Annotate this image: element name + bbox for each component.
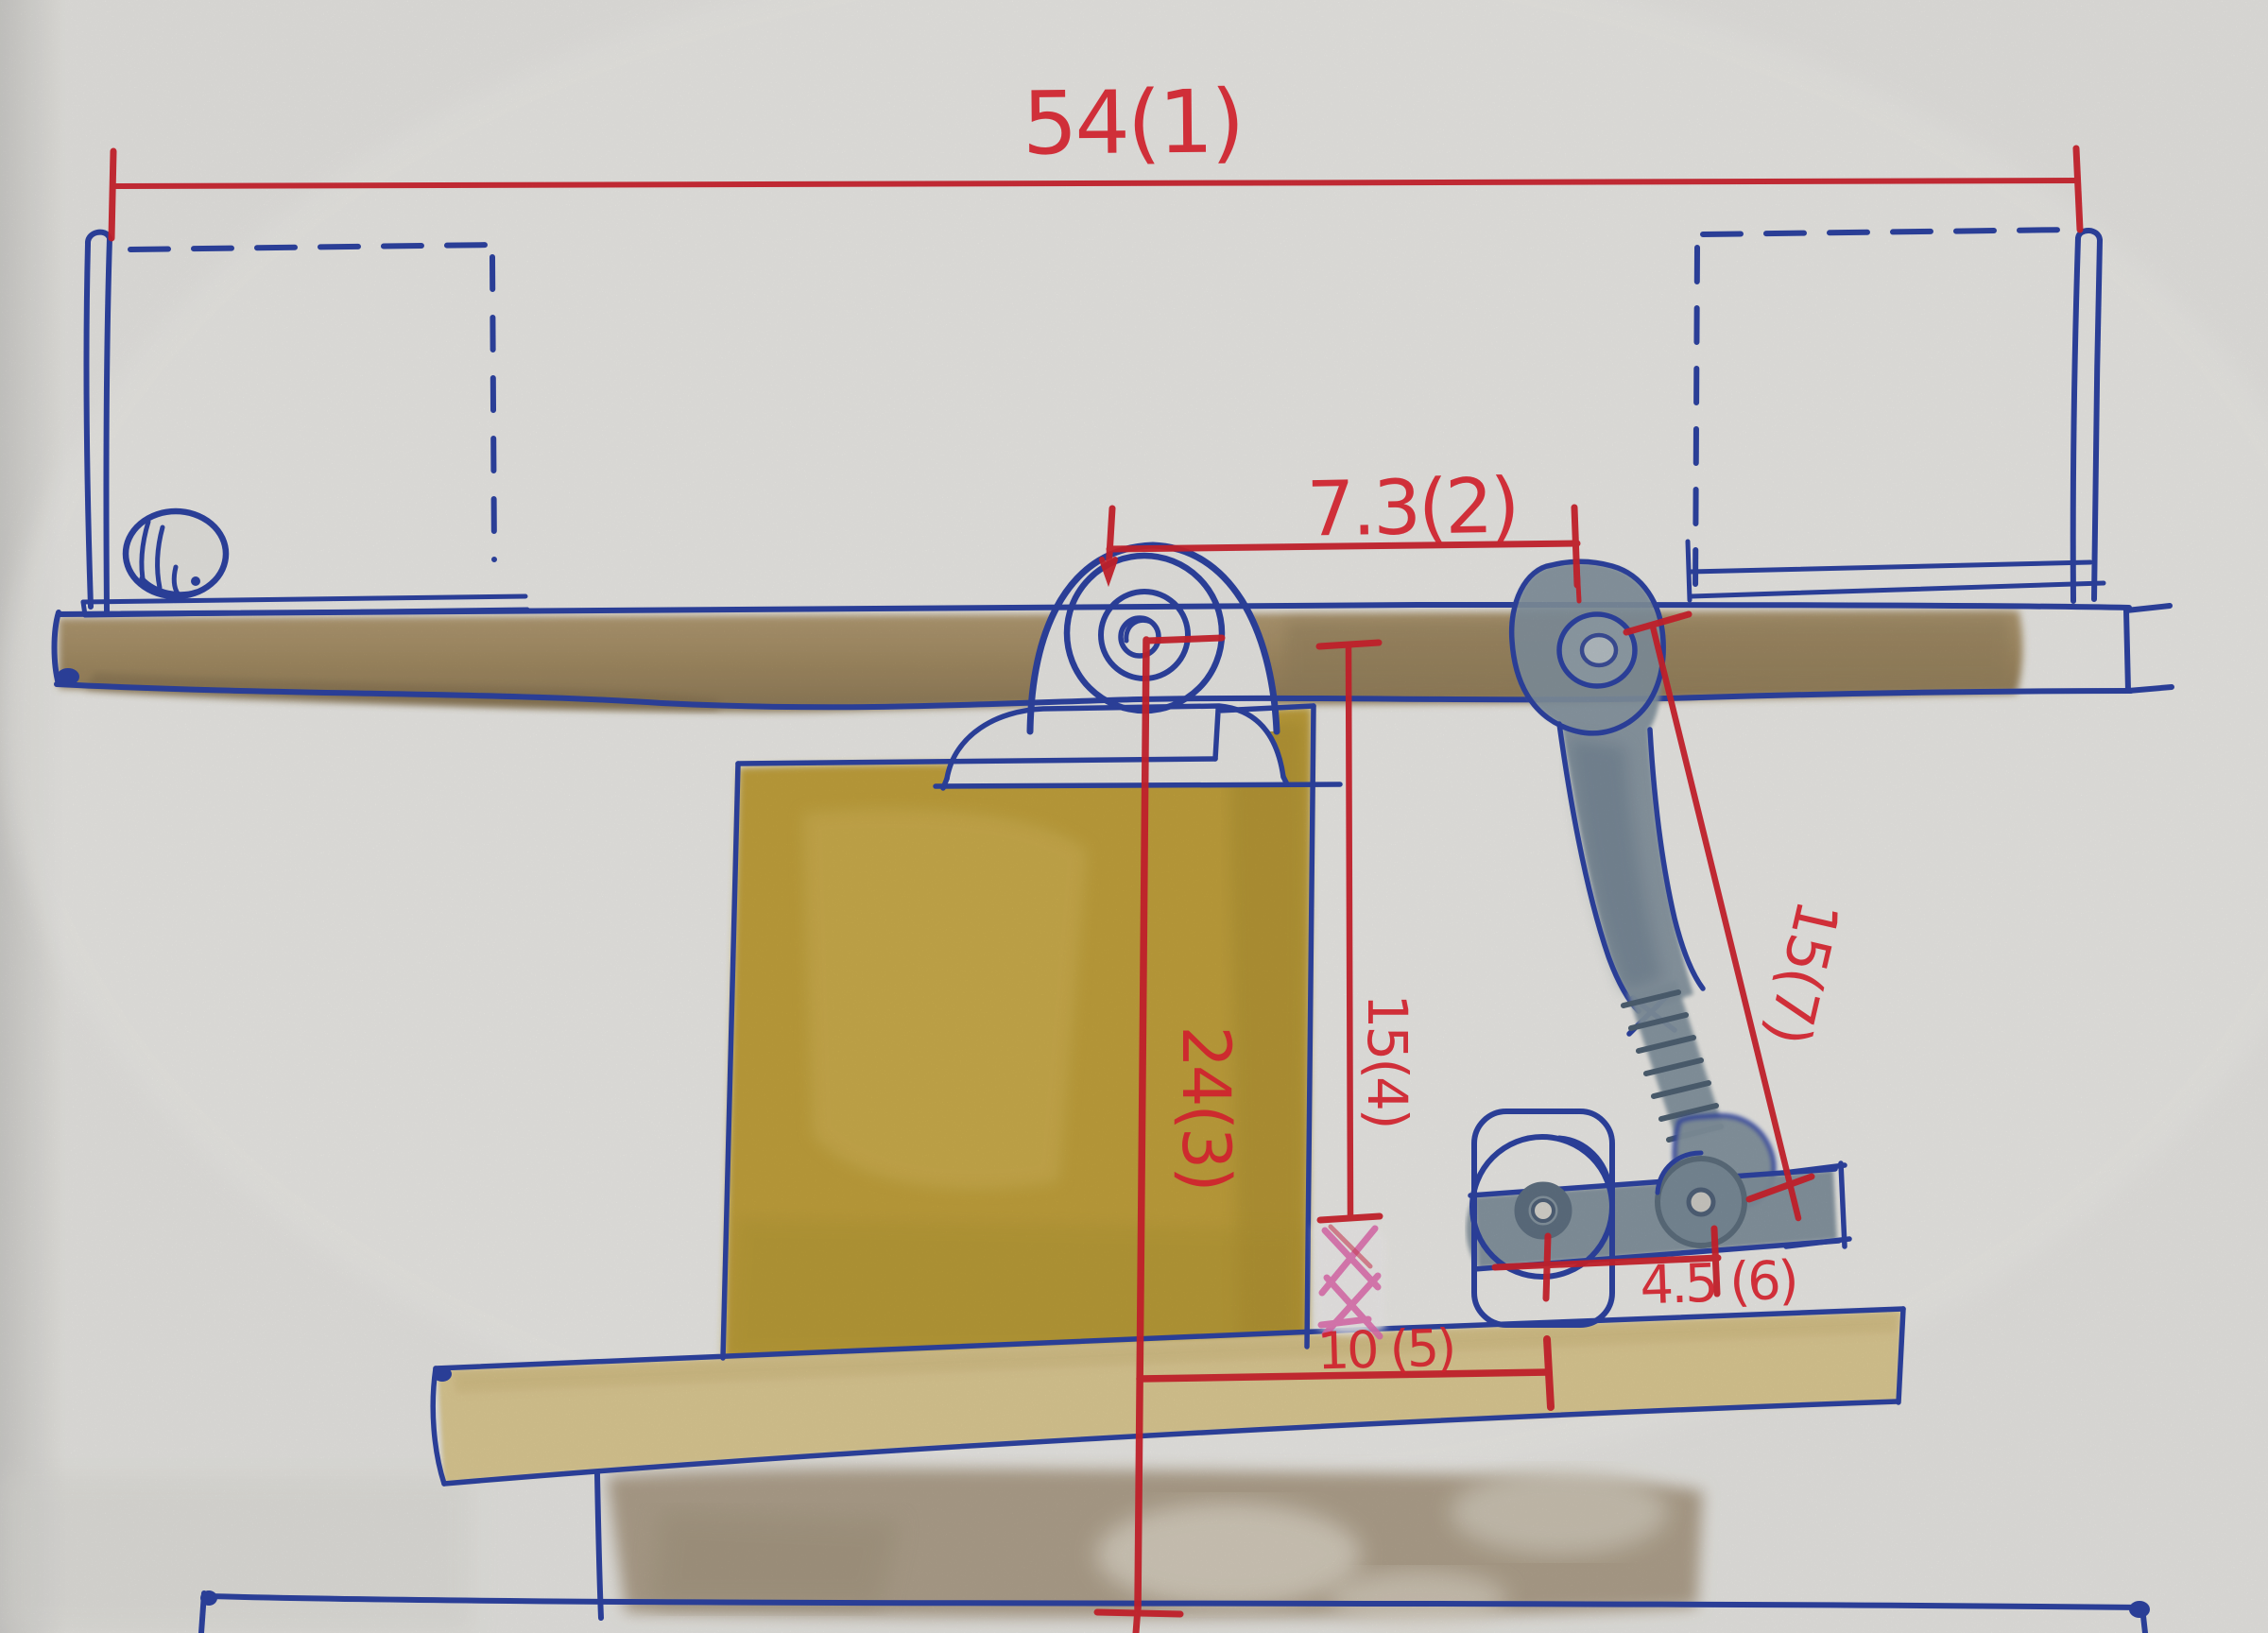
- dim-4-5-label: 4.5 (6): [1639, 1250, 1796, 1317]
- dim-24-label: 24(3): [1167, 1025, 1245, 1189]
- dim-54-label: 54(1): [1022, 71, 1242, 174]
- dim-15-4-label: 15(4): [1355, 994, 1419, 1127]
- watercolor-sketch-page: 54(1) 7.3(2) 24(3) 15(4) 10 (5) 4.5 (6) …: [0, 0, 2268, 1633]
- dim-7-3-label: 7.3(2): [1306, 462, 1518, 554]
- sketch-drawing: [0, 0, 2268, 1633]
- dim-10-label: 10 (5): [1316, 1318, 1454, 1382]
- paper-grain: [0, 0, 2268, 1633]
